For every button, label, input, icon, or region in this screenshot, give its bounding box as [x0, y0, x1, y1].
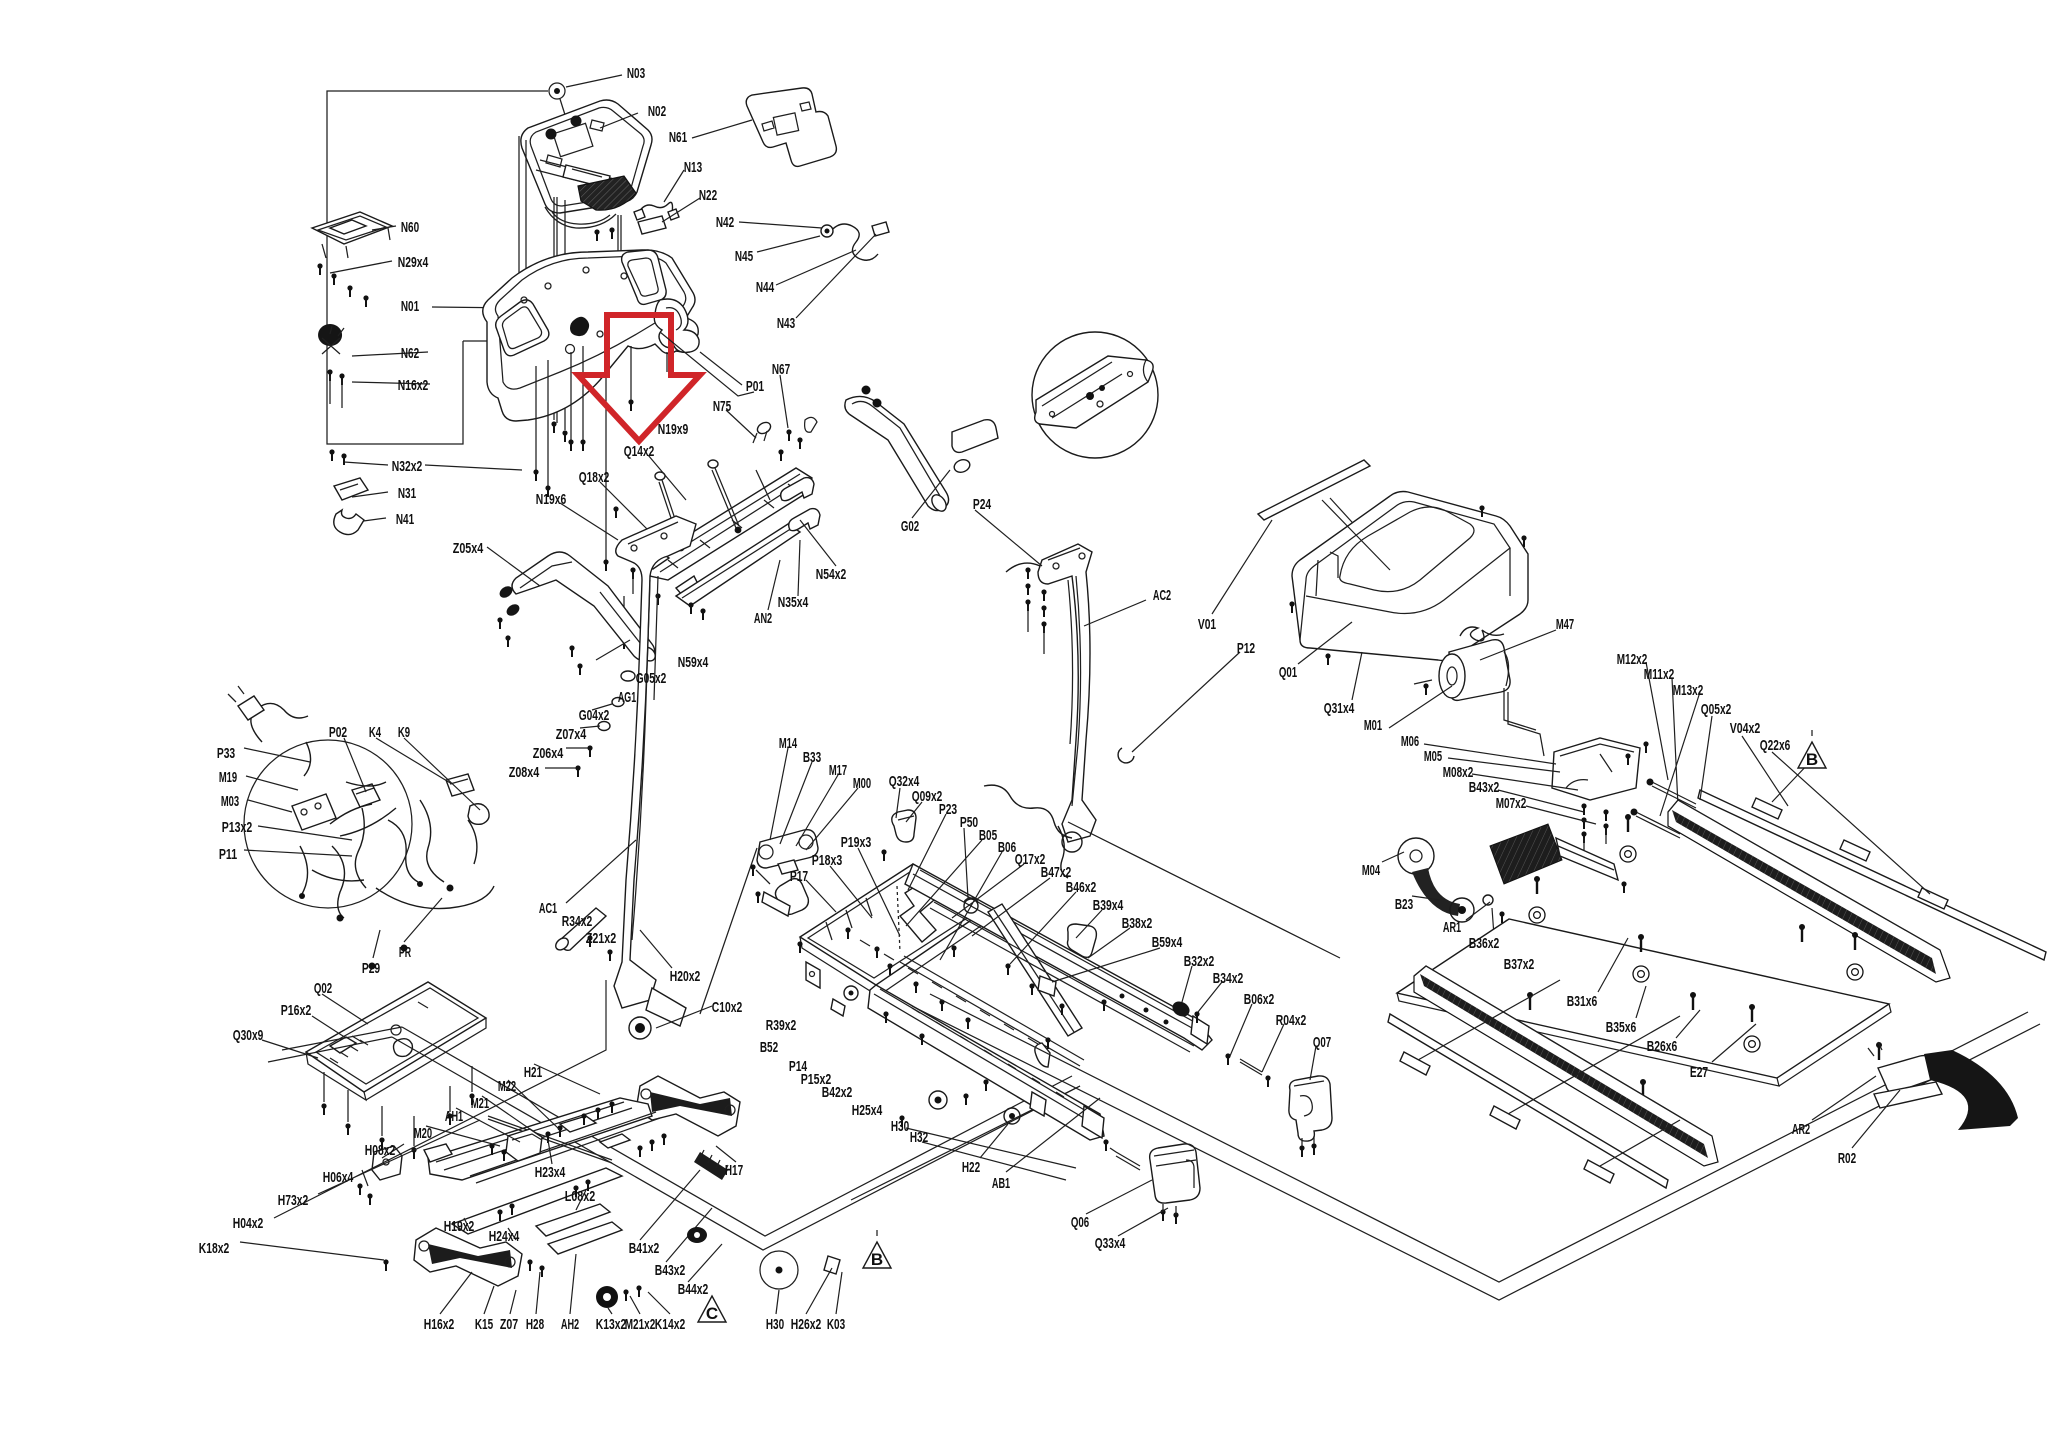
svg-text:N61: N61 [669, 129, 687, 146]
svg-text:Q07: Q07 [1313, 1034, 1331, 1051]
svg-text:R04x2: R04x2 [1276, 1012, 1307, 1029]
svg-text:Q09x2: Q09x2 [912, 788, 943, 805]
svg-text:AC1: AC1 [539, 900, 557, 917]
svg-text:M22: M22 [498, 1078, 516, 1095]
svg-text:AR2: AR2 [1792, 1121, 1810, 1138]
svg-text:M05: M05 [1424, 748, 1442, 765]
svg-text:P24: P24 [973, 496, 992, 513]
svg-text:Z06x4: Z06x4 [533, 745, 564, 762]
svg-text:N19x6: N19x6 [536, 491, 567, 508]
svg-text:N16x2: N16x2 [398, 377, 429, 394]
svg-text:Q18x2: Q18x2 [579, 469, 610, 486]
svg-text:H22: H22 [962, 1159, 980, 1176]
svg-text:P29: P29 [362, 960, 380, 977]
svg-text:B36x2: B36x2 [1469, 935, 1500, 952]
svg-text:G05x2: G05x2 [636, 670, 667, 687]
svg-text:P50: P50 [960, 814, 978, 831]
svg-text:B06x2: B06x2 [1244, 991, 1275, 1008]
svg-text:B43x2: B43x2 [655, 1262, 686, 1279]
svg-text:AN2: AN2 [754, 610, 772, 627]
svg-text:Q06: Q06 [1071, 1214, 1089, 1231]
svg-text:R02: R02 [1838, 1150, 1856, 1167]
svg-text:H28: H28 [526, 1316, 544, 1333]
svg-text:H30: H30 [891, 1118, 909, 1135]
svg-text:N02: N02 [648, 103, 666, 120]
svg-text:N54x2: N54x2 [816, 566, 847, 583]
svg-text:B59x4: B59x4 [1152, 934, 1183, 951]
svg-text:P23: P23 [939, 801, 957, 818]
svg-text:P33: P33 [217, 745, 235, 762]
svg-text:P17: P17 [790, 868, 808, 885]
svg-text:H16x2: H16x2 [424, 1316, 455, 1333]
svg-text:B32x2: B32x2 [1184, 953, 1215, 970]
svg-text:Z08x4: Z08x4 [509, 764, 540, 781]
svg-text:G04x2: G04x2 [579, 707, 610, 724]
svg-text:M14: M14 [779, 735, 798, 752]
svg-text:N31: N31 [398, 485, 416, 502]
svg-text:AH1: AH1 [445, 1108, 463, 1125]
svg-text:N22: N22 [699, 187, 717, 204]
svg-text:N75: N75 [713, 398, 731, 415]
svg-text:H08x2: H08x2 [365, 1142, 396, 1159]
svg-text:M04: M04 [1362, 862, 1381, 879]
svg-text:M21: M21 [471, 1095, 489, 1112]
svg-text:K13x2: K13x2 [596, 1316, 627, 1333]
svg-text:B33: B33 [803, 749, 821, 766]
svg-text:R34x2: R34x2 [562, 913, 593, 930]
svg-text:H30: H30 [766, 1316, 784, 1333]
svg-text:B34x2: B34x2 [1213, 970, 1244, 987]
svg-text:Z07: Z07 [500, 1316, 518, 1333]
svg-text:N03: N03 [627, 65, 645, 82]
svg-text:H32: H32 [910, 1129, 928, 1146]
svg-text:B06: B06 [998, 839, 1016, 856]
svg-text:M13x2: M13x2 [1673, 682, 1704, 699]
svg-text:Q31x4: Q31x4 [1324, 700, 1355, 717]
svg-text:P11: P11 [219, 846, 237, 863]
svg-text:P02: P02 [329, 724, 347, 741]
svg-text:N29x4: N29x4 [398, 254, 429, 271]
svg-text:N35x4: N35x4 [778, 594, 809, 611]
svg-text:N44: N44 [756, 279, 775, 296]
svg-text:P13x2: P13x2 [222, 819, 253, 836]
svg-text:H04x2: H04x2 [233, 1215, 264, 1232]
svg-text:P12: P12 [1237, 640, 1255, 657]
svg-text:N42: N42 [716, 214, 734, 231]
svg-text:B35x6: B35x6 [1606, 1019, 1637, 1036]
svg-text:K15: K15 [475, 1316, 493, 1333]
svg-text:H19x2: H19x2 [444, 1218, 475, 1235]
svg-text:N43: N43 [777, 315, 795, 332]
svg-text:M20: M20 [414, 1125, 432, 1142]
svg-text:AG1: AG1 [618, 689, 636, 706]
svg-text:Q02: Q02 [314, 980, 332, 997]
svg-text:P01: P01 [746, 378, 764, 395]
svg-text:C: C [706, 1304, 718, 1323]
svg-text:Q14x2: Q14x2 [624, 443, 655, 460]
svg-text:N01: N01 [401, 298, 419, 315]
svg-text:C10x2: C10x2 [712, 999, 743, 1016]
svg-text:B: B [1806, 750, 1818, 769]
svg-text:Q33x4: Q33x4 [1095, 1235, 1126, 1252]
svg-text:B05: B05 [979, 827, 997, 844]
svg-text:P16x2: P16x2 [281, 1002, 312, 1019]
svg-text:H24x4: H24x4 [489, 1228, 520, 1245]
svg-text:M19: M19 [219, 769, 237, 786]
svg-text:K03: K03 [827, 1316, 845, 1333]
svg-text:Q30x9: Q30x9 [233, 1027, 264, 1044]
svg-text:PR: PR [399, 944, 411, 961]
svg-text:N13: N13 [684, 159, 702, 176]
svg-text:B43x2: B43x2 [1469, 779, 1500, 796]
svg-text:H17: H17 [725, 1162, 743, 1179]
svg-text:V04x2: V04x2 [1730, 720, 1761, 737]
svg-text:H21: H21 [524, 1064, 542, 1081]
svg-text:K4: K4 [369, 724, 382, 741]
svg-text:R39x2: R39x2 [766, 1017, 797, 1034]
svg-text:AC2: AC2 [1153, 587, 1171, 604]
svg-text:M03: M03 [221, 793, 239, 810]
svg-text:B37x2: B37x2 [1504, 956, 1535, 973]
svg-text:E27: E27 [1690, 1064, 1708, 1081]
svg-text:B44x2: B44x2 [678, 1281, 709, 1298]
svg-text:H06x4: H06x4 [323, 1169, 354, 1186]
svg-text:M06: M06 [1401, 733, 1419, 750]
svg-text:H73x2: H73x2 [278, 1192, 309, 1209]
svg-text:M00: M00 [853, 775, 871, 792]
svg-text:Q22x6: Q22x6 [1760, 737, 1791, 754]
svg-text:AR1: AR1 [1443, 919, 1461, 936]
svg-text:G02: G02 [901, 518, 919, 535]
svg-text:M21x2: M21x2 [625, 1316, 656, 1333]
svg-text:B31x6: B31x6 [1567, 993, 1598, 1010]
svg-text:Z05x4: Z05x4 [453, 540, 484, 557]
svg-text:L08x2: L08x2 [565, 1188, 596, 1205]
svg-text:P19x3: P19x3 [841, 834, 872, 851]
svg-text:Z07x4: Z07x4 [556, 726, 587, 743]
svg-text:B46x2: B46x2 [1066, 879, 1097, 896]
svg-text:N32x2: N32x2 [392, 458, 423, 475]
svg-text:N45: N45 [735, 248, 753, 265]
svg-text:B26x6: B26x6 [1647, 1038, 1678, 1055]
svg-text:AH2: AH2 [561, 1316, 579, 1333]
svg-text:B: B [871, 1250, 883, 1269]
svg-text:H25x4: H25x4 [852, 1102, 883, 1119]
svg-text:B23: B23 [1395, 896, 1413, 913]
svg-text:P18x3: P18x3 [812, 852, 843, 869]
svg-text:N41: N41 [396, 511, 414, 528]
svg-text:Q01: Q01 [1279, 664, 1297, 681]
svg-text:AB1: AB1 [992, 1175, 1010, 1192]
svg-text:H20x2: H20x2 [670, 968, 701, 985]
svg-text:B41x2: B41x2 [629, 1240, 660, 1257]
svg-text:K18x2: K18x2 [199, 1240, 230, 1257]
svg-text:B38x2: B38x2 [1122, 915, 1153, 932]
svg-text:H23x4: H23x4 [535, 1164, 566, 1181]
svg-text:M07x2: M07x2 [1496, 795, 1527, 812]
svg-text:M47: M47 [1556, 616, 1574, 633]
svg-text:V01: V01 [1198, 616, 1216, 633]
svg-text:M17: M17 [829, 762, 847, 779]
svg-text:N67: N67 [772, 361, 790, 378]
svg-text:M01: M01 [1364, 717, 1382, 734]
svg-text:Z21x2: Z21x2 [586, 930, 617, 947]
svg-text:N62: N62 [401, 345, 419, 362]
svg-text:N59x4: N59x4 [678, 654, 709, 671]
svg-text:B42x2: B42x2 [822, 1084, 853, 1101]
svg-text:N60: N60 [401, 219, 419, 236]
svg-text:N19x9: N19x9 [658, 421, 689, 438]
svg-text:M11x2: M11x2 [1644, 666, 1675, 683]
svg-text:M12x2: M12x2 [1617, 651, 1648, 668]
svg-text:Q05x2: Q05x2 [1701, 701, 1732, 718]
svg-text:B39x4: B39x4 [1093, 897, 1124, 914]
svg-text:H26x2: H26x2 [791, 1316, 822, 1333]
svg-text:B52: B52 [760, 1039, 778, 1056]
svg-text:K9: K9 [398, 724, 410, 741]
svg-text:K14x2: K14x2 [655, 1316, 686, 1333]
